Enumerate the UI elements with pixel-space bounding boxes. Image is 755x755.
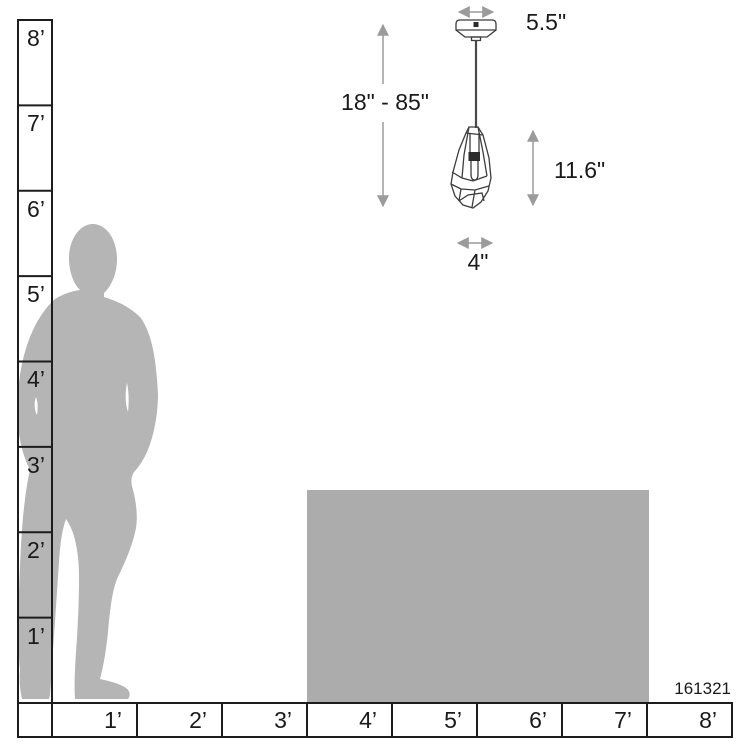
horizontal-ruler-label: 6’ bbox=[529, 707, 547, 733]
scale-diagram: 8’ 7’ 6’ 5’ 4’ 3’ 2’ 1’ 1’ 2’ 3’ 4’ 5’ 6… bbox=[0, 0, 755, 755]
furniture-block bbox=[307, 490, 649, 703]
shade-height-label: 11.6" bbox=[554, 157, 605, 183]
vertical-ruler-label: 6’ bbox=[27, 196, 45, 222]
canopy-width-label: 5.5" bbox=[526, 9, 566, 35]
vertical-ruler-label: 4’ bbox=[27, 366, 45, 392]
horizontal-ruler-label: 4’ bbox=[359, 707, 377, 733]
vertical-ruler-label: 2’ bbox=[27, 537, 45, 563]
vertical-ruler-label: 8’ bbox=[27, 25, 45, 51]
horizontal-ruler-label: 8’ bbox=[699, 707, 717, 733]
horizontal-ruler-label: 7’ bbox=[614, 707, 632, 733]
pendant-fixture bbox=[451, 20, 496, 208]
horizontal-ruler-label: 2’ bbox=[189, 707, 207, 733]
horizontal-ruler-labels: 1’ 2’ 3’ 4’ 5’ 6’ 7’ 8’ bbox=[104, 707, 717, 733]
diagram-canvas: 8’ 7’ 6’ 5’ 4’ 3’ 2’ 1’ 1’ 2’ 3’ 4’ 5’ 6… bbox=[0, 0, 755, 755]
dimension-arrows bbox=[383, 12, 533, 243]
horizontal-ruler-label: 3’ bbox=[274, 707, 292, 733]
socket-band bbox=[469, 152, 481, 161]
canopy-neck bbox=[472, 37, 481, 41]
horizontal-ruler-label: 1’ bbox=[104, 707, 122, 733]
product-code: 161321 bbox=[674, 679, 731, 698]
vertical-ruler-label: 7’ bbox=[27, 110, 45, 136]
bulb-socket-lines bbox=[470, 133, 479, 152]
dimension-labels: 5.5" 18" - 85" 11.6" 4" bbox=[341, 9, 605, 275]
horizontal-ruler-label: 5’ bbox=[444, 707, 462, 733]
bulb-outline bbox=[471, 161, 478, 180]
vertical-ruler-label: 3’ bbox=[27, 452, 45, 478]
vertical-ruler-label: 5’ bbox=[27, 281, 45, 307]
vertical-ruler-label: 1’ bbox=[27, 623, 45, 649]
suspension-range-label: 18" - 85" bbox=[341, 89, 429, 115]
canopy-screw bbox=[474, 22, 479, 27]
shade-width-label: 4" bbox=[468, 249, 489, 275]
